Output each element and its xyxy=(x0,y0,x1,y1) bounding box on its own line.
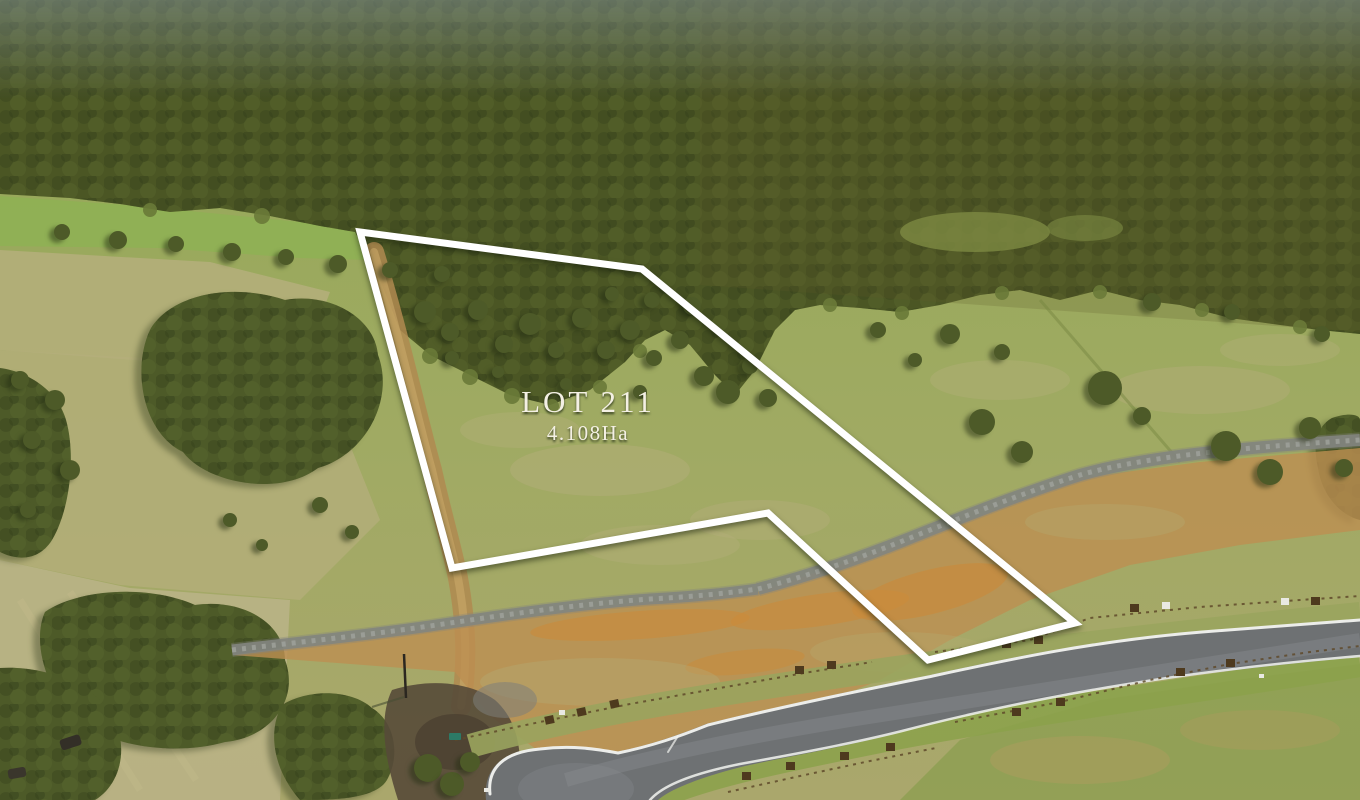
mailbox xyxy=(1130,604,1139,612)
tree xyxy=(644,292,660,308)
mailbox xyxy=(742,772,751,780)
tree xyxy=(605,287,619,301)
dry-mottle xyxy=(1025,504,1185,540)
tree xyxy=(1088,371,1122,405)
tree xyxy=(572,308,592,328)
tree xyxy=(434,266,450,282)
mailbox xyxy=(1176,668,1185,676)
tree xyxy=(462,369,478,385)
tree xyxy=(109,231,127,249)
dry-patch xyxy=(930,360,1070,400)
tree xyxy=(1224,304,1240,320)
tree xyxy=(908,353,922,367)
tree xyxy=(646,350,662,366)
tree xyxy=(440,772,464,796)
forest-clearing xyxy=(1047,215,1123,241)
tree xyxy=(312,497,328,513)
tree xyxy=(345,525,359,539)
tree xyxy=(254,208,270,224)
tree xyxy=(1211,431,1241,461)
mailbox xyxy=(1012,708,1021,716)
tree xyxy=(597,341,615,359)
tree xyxy=(759,389,777,407)
tree xyxy=(633,344,647,358)
tree xyxy=(329,255,347,273)
tree xyxy=(870,322,886,338)
tree xyxy=(694,366,714,386)
aerial-photograph: LOT 211 4.108Ha xyxy=(0,0,1360,800)
tree xyxy=(54,224,70,240)
tree xyxy=(422,348,438,364)
tree xyxy=(1293,320,1307,334)
tree xyxy=(969,409,995,435)
mailbox-white xyxy=(1281,598,1289,605)
tree xyxy=(671,331,689,349)
sign-board xyxy=(559,710,565,715)
forest-clearing xyxy=(900,212,1050,252)
tree xyxy=(11,371,29,389)
tree xyxy=(1143,293,1161,311)
tree xyxy=(548,342,564,358)
tree xyxy=(1314,326,1330,342)
tree xyxy=(1093,285,1107,299)
tree xyxy=(23,431,41,449)
dry-patch xyxy=(510,444,690,496)
tree xyxy=(143,203,157,217)
tree xyxy=(278,249,294,265)
tree xyxy=(940,324,960,344)
tree xyxy=(995,286,1009,300)
mailbox-white xyxy=(1162,602,1170,609)
tree xyxy=(1011,441,1033,463)
tree xyxy=(382,262,398,278)
tree xyxy=(895,306,909,320)
tree xyxy=(460,752,480,772)
tree xyxy=(1257,459,1283,485)
tree xyxy=(823,298,837,312)
tree xyxy=(1133,407,1151,425)
mailbox xyxy=(795,666,804,674)
tree xyxy=(716,380,740,404)
mailbox xyxy=(786,762,795,770)
atmospheric-haze xyxy=(0,0,1360,100)
roadside-dirt xyxy=(990,736,1170,784)
tree xyxy=(468,300,488,320)
tree xyxy=(1299,417,1321,439)
mailbox xyxy=(1311,597,1320,605)
tree xyxy=(45,390,65,410)
dry-patch xyxy=(1110,366,1290,414)
tree xyxy=(223,243,241,261)
tree xyxy=(223,513,237,527)
tree xyxy=(445,351,459,365)
mailbox xyxy=(886,743,895,751)
tree xyxy=(1335,459,1353,477)
tree xyxy=(168,236,184,252)
tree xyxy=(492,366,504,378)
mailbox xyxy=(840,752,849,760)
mailbox xyxy=(827,661,836,669)
tree xyxy=(414,754,442,782)
tree xyxy=(60,460,80,480)
mailbox xyxy=(1034,636,1043,644)
scene-canvas: LOT 211 4.108Ha xyxy=(0,0,1360,800)
mailbox xyxy=(1226,659,1235,667)
roadside-dirt xyxy=(1180,710,1340,750)
tree xyxy=(414,301,436,323)
tree xyxy=(504,388,520,404)
tree xyxy=(441,323,459,341)
tree xyxy=(519,313,541,335)
tree xyxy=(994,344,1010,360)
tree xyxy=(620,320,640,340)
tree xyxy=(20,502,36,518)
tree xyxy=(256,539,268,551)
mailbox xyxy=(1056,698,1065,706)
tree xyxy=(1195,303,1209,317)
tree xyxy=(495,335,513,353)
water-tank xyxy=(449,733,461,740)
lot-area-label: 4.108Ha xyxy=(547,421,629,445)
sign-board xyxy=(1259,674,1264,678)
gravel-spill xyxy=(473,682,537,718)
lot-label: LOT 211 xyxy=(521,384,655,419)
sign-board xyxy=(484,788,490,792)
